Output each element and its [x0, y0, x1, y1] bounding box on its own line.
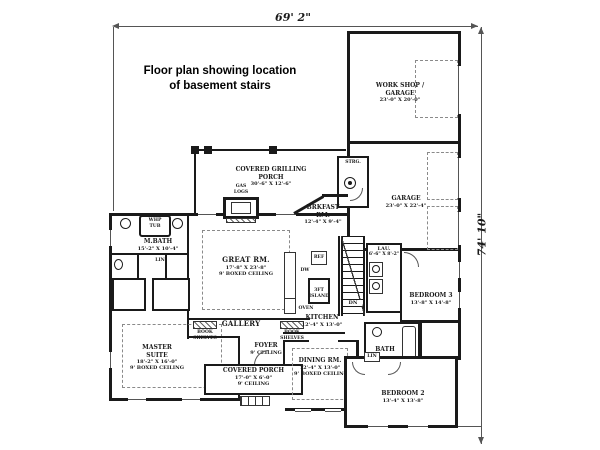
- room-name: GREAT RM.: [206, 256, 286, 265]
- room-name: MASTER: [117, 344, 197, 352]
- gas-logs-line2: LOGS: [230, 190, 252, 196]
- room-name: DINING RM.: [294, 357, 346, 365]
- room-label-workshop: WORK SHOP / GARAGE 23'-0" X 20'-0": [360, 82, 440, 103]
- width-dimension-label: 69' 2": [250, 11, 336, 24]
- window: [182, 397, 200, 402]
- master-closet: [152, 278, 190, 311]
- room-label-great-room: GREAT RM. 17'-8" X 23'-8" 9' BOXED CEILI…: [206, 256, 286, 277]
- plan-title-line2: of basement stairs: [128, 79, 312, 94]
- firebox: [231, 202, 251, 214]
- window: [408, 424, 428, 429]
- extension-line: [458, 426, 481, 427]
- label-linen: LIN: [152, 258, 168, 264]
- room-name: WORK SHOP /: [360, 82, 440, 90]
- book-shelves: [193, 321, 217, 329]
- room-note: 9' BOXED CEILING: [294, 371, 346, 377]
- porch-steps: [240, 396, 270, 406]
- garage-opening-1: [456, 158, 461, 198]
- arrow-right-icon: [471, 23, 478, 29]
- plan-title-line1: Floor plan showing location: [128, 64, 312, 79]
- room-note: 9' BOXED CEILING: [117, 365, 197, 371]
- island-line2: ISLAND: [308, 294, 330, 300]
- room-label-mbath: M.BATH 15'-2" X 10'-4": [127, 238, 189, 252]
- room-label-kitchen: KITCHEN 12'-4" X 13'-0": [296, 314, 348, 328]
- label-gas-logs: GAS LOGS: [230, 184, 252, 195]
- room-label-garage: GARAGE 23'-0" X 22'-4": [368, 195, 444, 209]
- dimension-leader-left: [113, 27, 114, 211]
- window: [457, 292, 462, 308]
- room-label-breakfast: BRKFAST RM. 12'-4" X 9'-4": [300, 204, 346, 225]
- floor-plan: 69' 2" 74' 10" Floor plan showing locati…: [0, 0, 600, 450]
- height-dimension-label: 74' 10": [476, 203, 489, 267]
- dining-west-stub: [283, 340, 285, 366]
- gallery-south-wall: [187, 336, 240, 338]
- room-label-dining: DINING RM. 12'-4" X 13'-0" 9' BOXED CEIL…: [294, 357, 346, 377]
- room-dims: 12'-4" X 13'-0": [294, 365, 346, 371]
- kitchen-south-wall: [283, 332, 345, 334]
- window: [128, 397, 146, 402]
- arrow-down-icon: [478, 437, 484, 444]
- garage-door-outline-1: [427, 152, 458, 200]
- garage-door-outline-2: [427, 206, 458, 250]
- room-label-storage: STRG.: [338, 160, 368, 166]
- room-label-bedroom2: BEDROOM 2 13'-4" X 13'-8": [368, 390, 438, 404]
- room-name: BEDROOM 2: [368, 390, 438, 398]
- window: [368, 424, 388, 429]
- sink-icon: [120, 218, 131, 229]
- label-linen2: LIN: [364, 354, 380, 360]
- master-closet: [112, 278, 146, 311]
- label-stairs-down: DN: [344, 300, 362, 306]
- toilet-icon: [114, 259, 123, 270]
- mbath-east-wall: [187, 213, 189, 339]
- arrow-up-icon: [478, 27, 484, 34]
- mbath-partition-wall: [112, 253, 188, 255]
- bedroom3-west-wall: [400, 249, 402, 323]
- room-dims: 13'-4" X 13'-8": [368, 398, 438, 404]
- porch-column: [204, 146, 212, 154]
- room-dims: 13'-8" X 14'-8": [403, 300, 459, 306]
- porch-column: [269, 146, 277, 154]
- garage-opening-2: [456, 212, 461, 248]
- window: [295, 409, 311, 414]
- room-name: BRKFAST: [300, 204, 346, 212]
- bathtub: [402, 326, 416, 360]
- label-whp-tub: WHP TUB: [141, 218, 169, 229]
- room-label-covered-porch: COVERED PORCH 17'-0" X 6'-0" 9' CEILING: [206, 367, 301, 387]
- room-label-master: MASTER SUITE 18'-2" X 16'-0" 9' BOXED CE…: [117, 344, 197, 372]
- window: [108, 352, 113, 368]
- window: [108, 230, 113, 246]
- mbath-partition-stub: [137, 253, 139, 279]
- room-name: BEDROOM 3: [403, 292, 459, 300]
- porch-column: [191, 146, 199, 154]
- room-note: 9' CEILING: [206, 381, 301, 387]
- label-ref: REF: [311, 255, 327, 261]
- dining-north-wall: [338, 340, 358, 342]
- window: [198, 212, 216, 217]
- room-name: GARAGE: [368, 195, 444, 203]
- room-name: PORCH: [224, 174, 318, 182]
- room-name: COVERED PORCH: [206, 367, 301, 375]
- water-heater-dot-icon: [348, 181, 352, 185]
- room-dims: 15'-2" X 10'-4": [127, 246, 189, 252]
- exterior-right-wall: [458, 320, 461, 360]
- plan-title: Floor plan showing location of basement …: [128, 64, 312, 94]
- dimension-line-top: [116, 26, 478, 27]
- stair-rail-wall: [338, 236, 340, 316]
- window: [325, 409, 341, 414]
- label-oven: OVEN: [296, 306, 316, 312]
- room-name: M.BATH: [127, 238, 189, 246]
- room-name: GARAGE: [360, 90, 440, 98]
- sink-icon: [172, 218, 183, 229]
- mbath-partition-stub: [165, 253, 167, 279]
- breakfast-bay-wall: [322, 194, 348, 197]
- dryer-door-icon: [372, 282, 380, 290]
- window: [457, 262, 462, 278]
- room-name: SUITE: [117, 352, 197, 360]
- washer-door-icon: [372, 265, 380, 273]
- sink-icon: [372, 327, 382, 337]
- hearth-hatch: [226, 218, 256, 223]
- room-label-bedroom3: BEDROOM 3 13'-8" X 14'-8": [403, 292, 459, 306]
- bedroom3-east-wall: [458, 245, 461, 323]
- room-dims: 12'-4" X 9'-4": [300, 219, 346, 225]
- room-name: COVERED GRILLING: [224, 166, 318, 174]
- dining-north-wall: [283, 340, 309, 342]
- room-name: RM.: [300, 212, 346, 220]
- whp-line2: TUB: [141, 224, 169, 230]
- workshop-garage-divider-wall: [350, 141, 458, 144]
- hall-east-wall: [420, 322, 422, 358]
- workshop-opening: [456, 66, 461, 114]
- label-island: 3FT ISLAND: [308, 288, 330, 299]
- room-label-laundry: LAU. 6'-6" X 8'-2": [368, 246, 400, 258]
- room-dims: 23'-0" X 22'-4": [368, 203, 444, 209]
- bedroom3-door-arc: [404, 252, 419, 267]
- room-dims: 23'-0" X 20'-0": [360, 97, 440, 103]
- room-dims: 6'-6" X 8'-2": [368, 252, 400, 258]
- oven: [284, 298, 296, 314]
- room-dims: 12'-4" X 13'-0": [296, 322, 348, 328]
- room-label-gallery: GALLERY: [216, 320, 266, 329]
- grilling-porch-edge-left: [194, 149, 196, 213]
- room-note: 9' BOXED CEILING: [206, 271, 286, 277]
- label-dw: DW: [298, 268, 312, 274]
